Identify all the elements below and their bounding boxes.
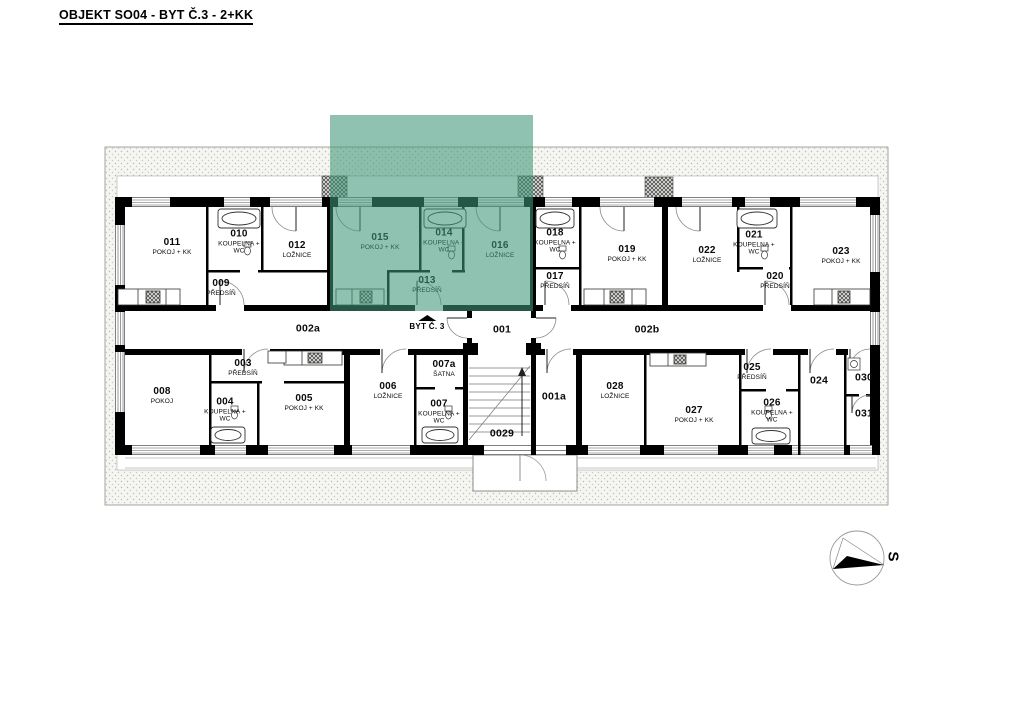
room-label-030: 030 xyxy=(839,372,889,383)
room-label-019: 019POKOJ + KK xyxy=(602,245,652,263)
room-label-003: 003PŘEDSÍŇ xyxy=(218,359,268,377)
room-label-005: 005POKOJ + KK xyxy=(279,394,329,412)
apartment-arrow-icon xyxy=(418,315,436,321)
room-label-018: 018KOUPELNA + WC xyxy=(530,229,580,254)
room-label-001a: 001a xyxy=(529,391,579,402)
room-label-020: 020PŘEDSÍŇ xyxy=(750,272,800,290)
room-label-008: 008POKOJ xyxy=(137,387,187,405)
room-label-011: 011POKOJ + KK xyxy=(147,238,197,256)
drawing-title: OBJEKT SO04 - BYT Č.3 - 2+KK xyxy=(59,8,253,25)
room-label-002b: 002b xyxy=(622,324,672,335)
room-label-014: 014KOUPELNA + WC xyxy=(419,229,469,254)
room-label-015: 015POKOJ + KK xyxy=(355,233,405,251)
room-label-009: 009PŘEDSÍŇ xyxy=(196,279,246,297)
room-label-028: 028LOŽNICE xyxy=(590,382,640,400)
room-label-004: 004KOUPELNA + WC xyxy=(200,398,250,423)
room-label-023: 023POKOJ + KK xyxy=(816,247,866,265)
apartment-marker-label: BYT Č. 3 xyxy=(409,322,444,331)
room-label-017: 017PŘEDSÍŇ xyxy=(530,272,580,290)
room-label-007: 007KOUPELNA + WC xyxy=(414,400,464,425)
room-label-006: 006LOŽNICE xyxy=(363,382,413,400)
room-label-001: 001 xyxy=(477,324,527,335)
room-label-002a: 002a xyxy=(283,323,333,334)
room-label-022: 022LOŽNICE xyxy=(682,246,732,264)
room-label-0029: 0029 xyxy=(477,428,527,439)
room-label-016: 016LOŽNICE xyxy=(475,241,525,259)
room-label-025: 025PŘEDSÍŇ xyxy=(727,363,777,381)
room-labels: 011POKOJ + KK 010KOUPELNA + WC 012LOŽNIC… xyxy=(0,0,1024,724)
room-label-024: 024 xyxy=(794,375,844,386)
room-label-010: 010KOUPELNA + WC xyxy=(214,230,264,255)
room-label-027: 027POKOJ + KK xyxy=(669,406,719,424)
room-label-021: 021KOUPELNA + WC xyxy=(729,231,779,256)
apartment-marker: BYT Č. 3 xyxy=(409,315,444,331)
room-label-012: 012LOŽNICE xyxy=(272,241,322,259)
room-label-007a: 007aŠATNA xyxy=(419,360,469,378)
room-label-026: 026KOUPELNA + WC xyxy=(747,399,797,424)
compass-north-label: S xyxy=(885,551,902,561)
floor-plan-page: 011POKOJ + KK 010KOUPELNA + WC 012LOŽNIC… xyxy=(0,0,1024,724)
room-label-031: 031 xyxy=(839,408,889,419)
room-label-013: 013PŘEDSÍŇ xyxy=(402,276,452,294)
